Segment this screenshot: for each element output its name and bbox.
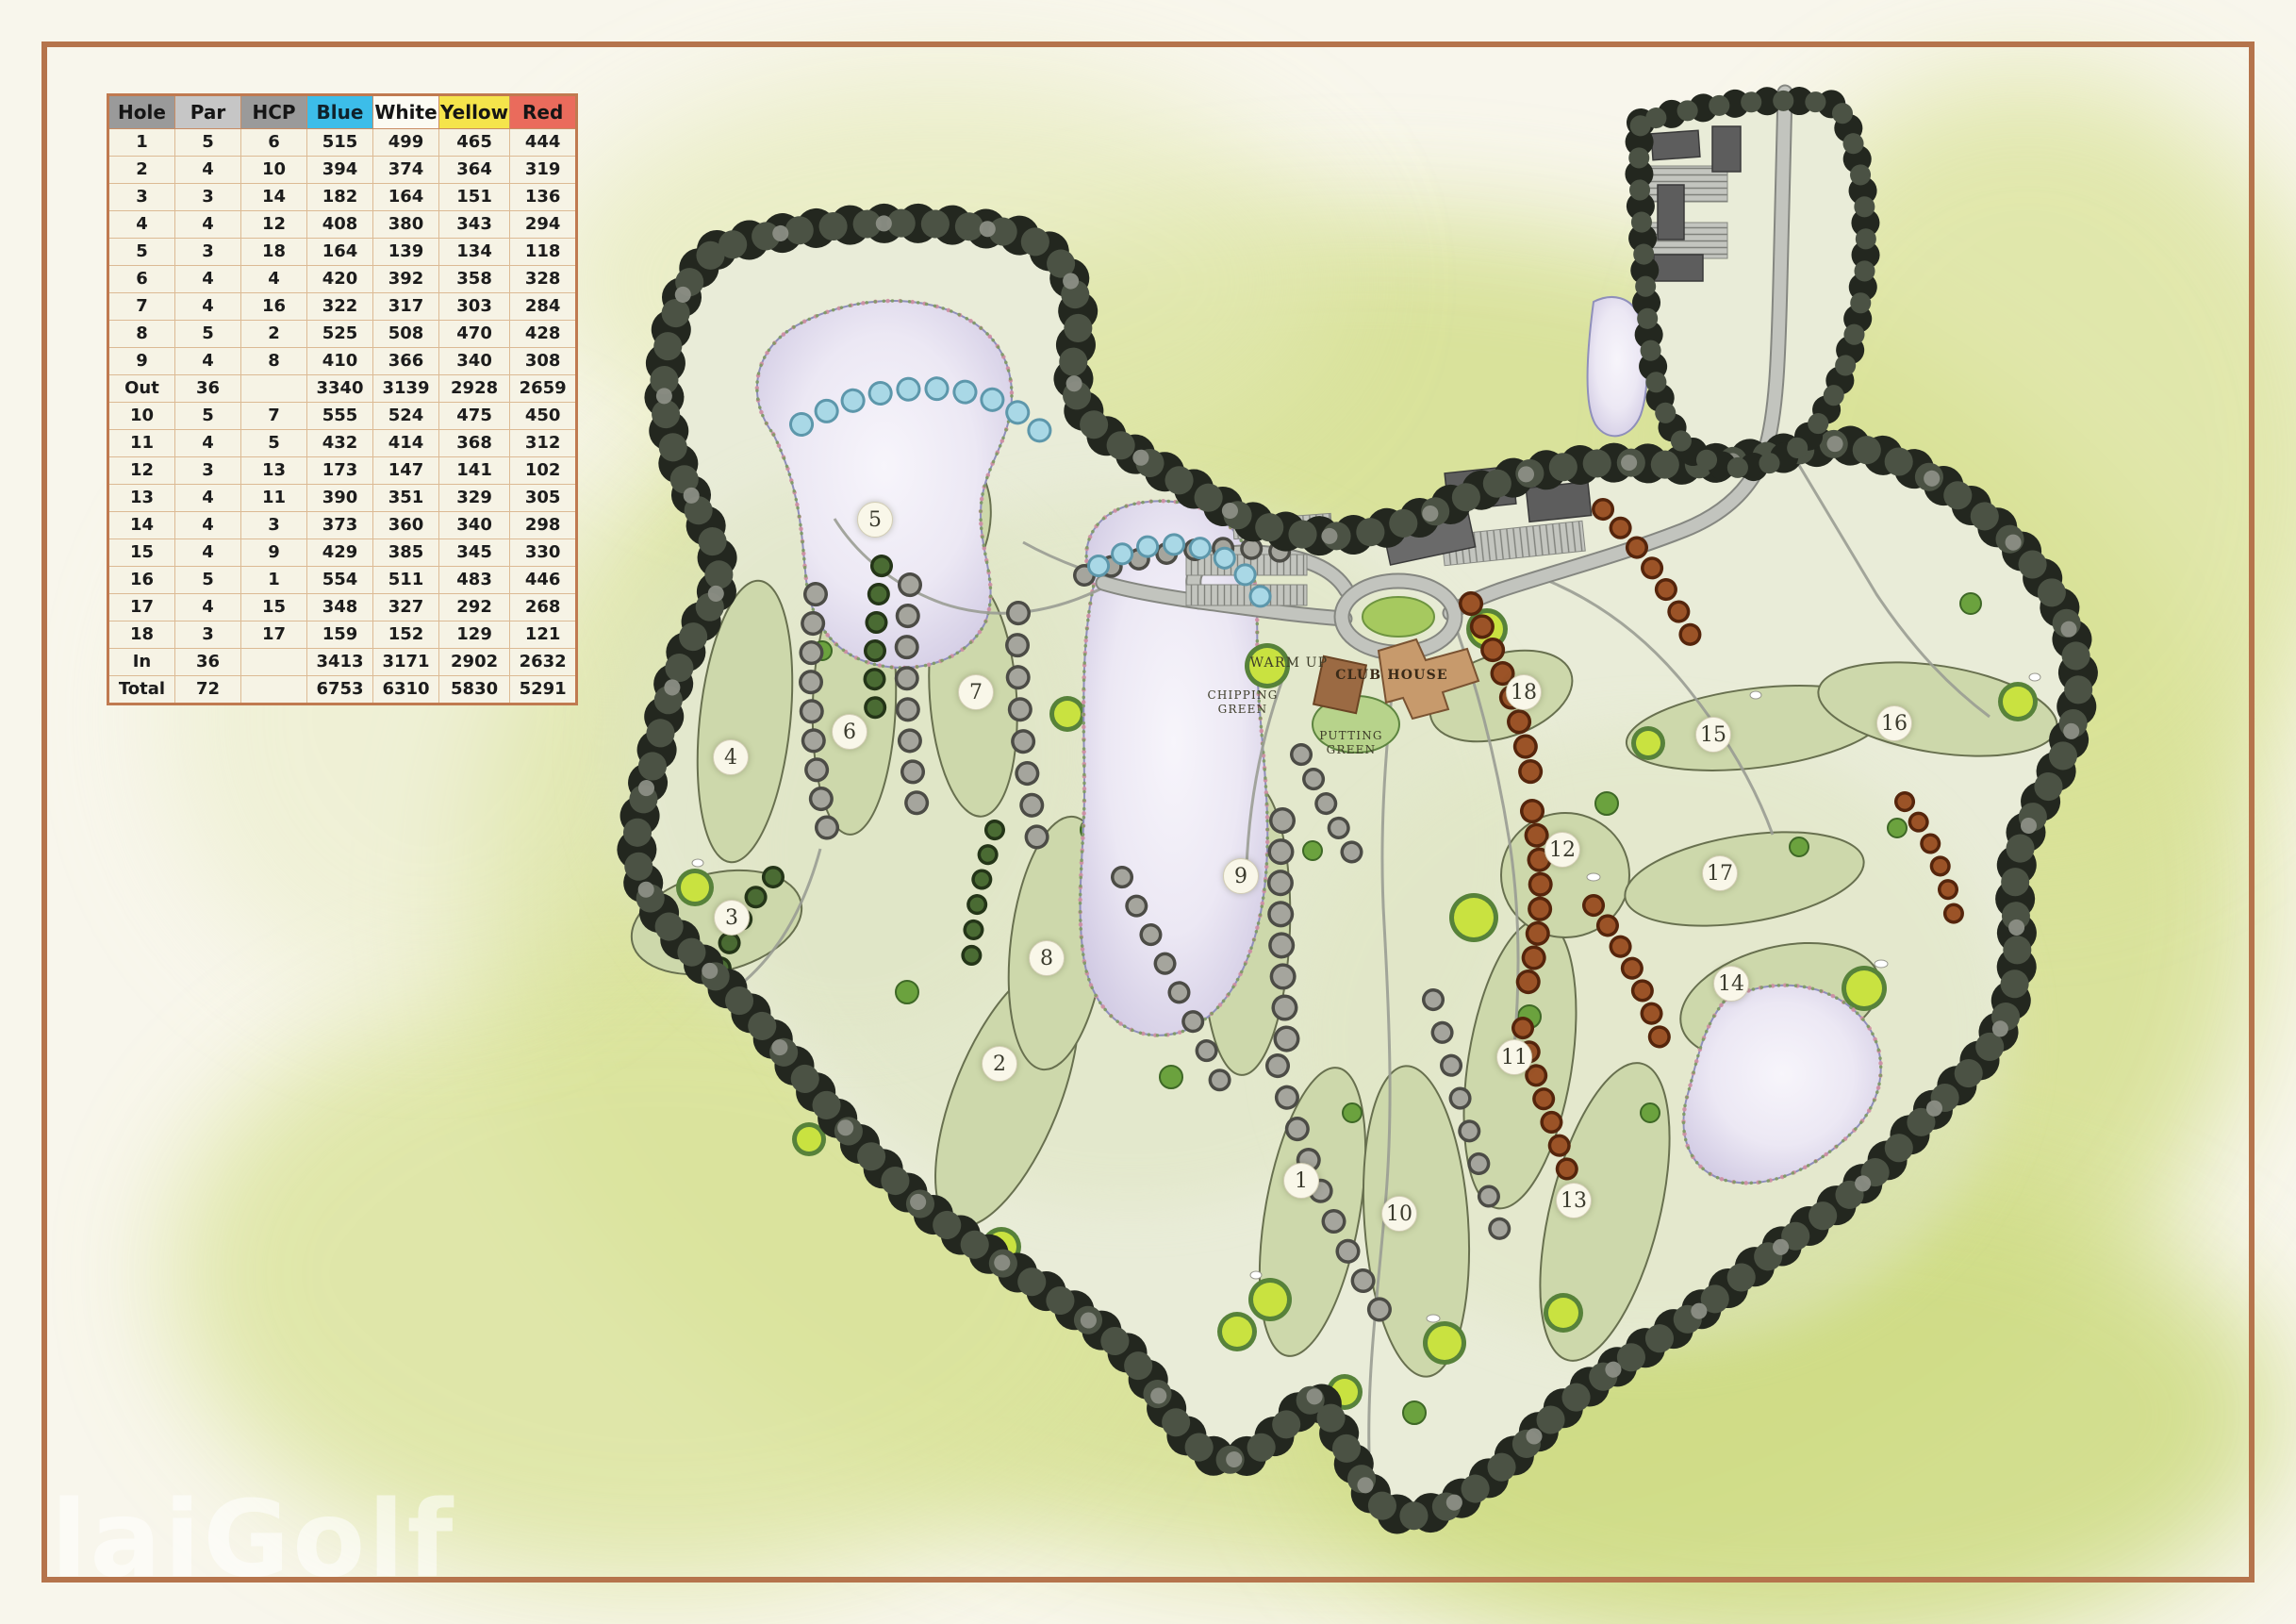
table-cell: 9 — [241, 539, 307, 567]
table-cell: 5291 — [510, 676, 577, 704]
column-header-red: Red — [510, 95, 577, 129]
hole-marker-2: 2 — [982, 1046, 1017, 1082]
table-cell: 6 — [241, 129, 307, 157]
column-header-white: White — [373, 95, 439, 129]
table-cell: 118 — [510, 239, 577, 266]
table-cell: 305 — [510, 485, 577, 512]
table-cell: 15 — [108, 539, 175, 567]
table-row: 17415348327292268 — [108, 594, 577, 621]
hole-marker-8: 8 — [1029, 940, 1065, 976]
table-cell: 525 — [307, 321, 373, 348]
table-row: 7416322317303284 — [108, 293, 577, 321]
table-cell: 16 — [241, 293, 307, 321]
table-cell: 3413 — [307, 649, 373, 676]
table-cell: 5 — [175, 567, 241, 594]
table-cell: 374 — [373, 157, 439, 184]
table-cell: 499 — [373, 129, 439, 157]
table-cell: 483 — [439, 567, 510, 594]
table-cell: 4 — [175, 211, 241, 239]
chipping-green-label: CHIPPING GREEN — [1201, 688, 1284, 717]
table-cell: 139 — [373, 239, 439, 266]
table-row: Total726753631058305291 — [108, 676, 577, 704]
table-cell: 328 — [510, 266, 577, 293]
table-row: 1651554511483446 — [108, 567, 577, 594]
table-cell: 7 — [241, 403, 307, 430]
table-cell: 319 — [510, 157, 577, 184]
golf-course-map-page: laiGolf HoleParHCPBlueWhiteYellowRed 156… — [0, 0, 2296, 1624]
table-cell: 11 — [108, 430, 175, 457]
table-cell: 2902 — [439, 649, 510, 676]
table-cell: 4 — [175, 293, 241, 321]
table-cell: 303 — [439, 293, 510, 321]
table-cell: 294 — [510, 211, 577, 239]
table-cell: 444 — [510, 129, 577, 157]
table-cell: 450 — [510, 403, 577, 430]
table-cell: 3139 — [373, 375, 439, 403]
table-cell: 5 — [175, 129, 241, 157]
table-row: 1145432414368312 — [108, 430, 577, 457]
table-row: 5318164139134118 — [108, 239, 577, 266]
table-cell: 343 — [439, 211, 510, 239]
table-cell: 4 — [175, 485, 241, 512]
table-cell: 4 — [175, 266, 241, 293]
table-cell: 151 — [439, 184, 510, 211]
table-row: Out363340313929282659 — [108, 375, 577, 403]
column-header-par: Par — [175, 95, 241, 129]
table-cell: 8 — [241, 348, 307, 375]
table-cell: 18 — [241, 239, 307, 266]
table-cell: 7 — [108, 293, 175, 321]
table-cell: 16 — [108, 567, 175, 594]
table-cell: 3340 — [307, 375, 373, 403]
table-cell: 329 — [439, 485, 510, 512]
table-cell: 298 — [510, 512, 577, 539]
table-cell: 327 — [373, 594, 439, 621]
table-cell: 72 — [175, 676, 241, 704]
table-cell: 11 — [241, 485, 307, 512]
table-cell: 340 — [439, 348, 510, 375]
table-cell: 428 — [510, 321, 577, 348]
table-row: 1443373360340298 — [108, 512, 577, 539]
table-cell: 4 — [241, 266, 307, 293]
warm-up-label: WARM UP — [1250, 655, 1329, 671]
table-cell: 13 — [241, 457, 307, 485]
table-cell: 5 — [175, 321, 241, 348]
hole-marker-6: 6 — [832, 714, 867, 750]
table-cell: 1 — [241, 567, 307, 594]
hole-marker-3: 3 — [714, 900, 750, 936]
table-cell: 4 — [175, 512, 241, 539]
table-cell: 408 — [307, 211, 373, 239]
table-cell: 3 — [175, 239, 241, 266]
table-cell: 3 — [175, 457, 241, 485]
table-cell: 173 — [307, 457, 373, 485]
hole-marker-9: 9 — [1223, 858, 1259, 894]
table-cell: 345 — [439, 539, 510, 567]
table-cell: 555 — [307, 403, 373, 430]
table-cell: 3 — [175, 184, 241, 211]
table-cell: 8 — [108, 321, 175, 348]
table-cell: 164 — [373, 184, 439, 211]
table-cell — [241, 676, 307, 704]
table-cell: 4 — [108, 211, 175, 239]
scorecard-table: HoleParHCPBlueWhiteYellowRed 15651549946… — [107, 93, 578, 705]
table-cell: 358 — [439, 266, 510, 293]
table-cell: 420 — [307, 266, 373, 293]
hole-marker-7: 7 — [958, 674, 994, 710]
table-cell: 134 — [439, 239, 510, 266]
table-row: In363413317129022632 — [108, 649, 577, 676]
hole-marker-11: 11 — [1496, 1039, 1532, 1075]
table-cell: 312 — [510, 430, 577, 457]
table-cell: 3 — [241, 512, 307, 539]
table-cell: 351 — [373, 485, 439, 512]
hole-marker-18: 18 — [1506, 674, 1542, 710]
hole-marker-5: 5 — [857, 502, 893, 538]
hole-marker-15: 15 — [1695, 717, 1731, 753]
table-cell: 2928 — [439, 375, 510, 403]
table-cell: 5 — [241, 430, 307, 457]
table-cell: 102 — [510, 457, 577, 485]
table-row: 13411390351329305 — [108, 485, 577, 512]
roundabout-island — [1363, 597, 1434, 637]
table-cell: 12 — [108, 457, 175, 485]
table-cell: 511 — [373, 567, 439, 594]
table-cell: 515 — [307, 129, 373, 157]
table-row: 1057555524475450 — [108, 403, 577, 430]
table-cell: 3171 — [373, 649, 439, 676]
hole-marker-4: 4 — [713, 739, 749, 775]
club-house-label: CLUB HOUSE — [1335, 668, 1448, 683]
table-cell: 182 — [307, 184, 373, 211]
table-cell: 159 — [307, 621, 373, 649]
table-row: 852525508470428 — [108, 321, 577, 348]
table-cell: 10 — [241, 157, 307, 184]
table-cell: 385 — [373, 539, 439, 567]
table-cell: 360 — [373, 512, 439, 539]
hole-marker-16: 16 — [1876, 705, 1912, 741]
table-cell: 2 — [241, 321, 307, 348]
table-cell: 373 — [307, 512, 373, 539]
table-cell: 465 — [439, 129, 510, 157]
table-cell: 284 — [510, 293, 577, 321]
table-row: 2410394374364319 — [108, 157, 577, 184]
table-cell — [241, 375, 307, 403]
column-header-hole: Hole — [108, 95, 175, 129]
table-cell: 3 — [175, 621, 241, 649]
column-header-yellow: Yellow — [439, 95, 510, 129]
table-cell: 390 — [307, 485, 373, 512]
hole-marker-10: 10 — [1381, 1196, 1417, 1232]
table-cell: 475 — [439, 403, 510, 430]
table-cell: 554 — [307, 567, 373, 594]
scorecard-body: 1565154994654442410394374364319331418216… — [108, 129, 577, 704]
putting-green-label: PUTTING GREEN — [1310, 729, 1393, 757]
table-cell: 5 — [175, 403, 241, 430]
watermark: laiGolf — [51, 1479, 455, 1601]
table-cell: In — [108, 649, 175, 676]
table-cell: 364 — [439, 157, 510, 184]
table-cell: 394 — [307, 157, 373, 184]
table-cell: 368 — [439, 430, 510, 457]
table-cell: 4 — [175, 430, 241, 457]
table-cell: 10 — [108, 403, 175, 430]
table-cell: 292 — [439, 594, 510, 621]
table-cell: 380 — [373, 211, 439, 239]
table-cell — [241, 649, 307, 676]
table-cell: 2659 — [510, 375, 577, 403]
table-cell: 6753 — [307, 676, 373, 704]
table-cell: 141 — [439, 457, 510, 485]
table-cell: 4 — [175, 594, 241, 621]
scorecard-header-row: HoleParHCPBlueWhiteYellowRed — [108, 95, 577, 129]
table-cell: 2 — [108, 157, 175, 184]
table-cell: 322 — [307, 293, 373, 321]
table-cell: 446 — [510, 567, 577, 594]
table-cell: 2632 — [510, 649, 577, 676]
column-header-blue: Blue — [307, 95, 373, 129]
table-cell: 15 — [241, 594, 307, 621]
table-cell: 508 — [373, 321, 439, 348]
table-row: 18317159152129121 — [108, 621, 577, 649]
table-cell: 429 — [307, 539, 373, 567]
table-cell: 4 — [175, 157, 241, 184]
table-cell: 410 — [307, 348, 373, 375]
table-cell: 36 — [175, 375, 241, 403]
table-cell: 470 — [439, 321, 510, 348]
table-cell: Total — [108, 676, 175, 704]
table-cell: 432 — [307, 430, 373, 457]
table-cell: 4 — [175, 539, 241, 567]
table-row: 644420392358328 — [108, 266, 577, 293]
table-cell: 524 — [373, 403, 439, 430]
table-row: 948410366340308 — [108, 348, 577, 375]
table-cell: 147 — [373, 457, 439, 485]
table-row: 156515499465444 — [108, 129, 577, 157]
table-cell: 121 — [510, 621, 577, 649]
hole-marker-13: 13 — [1556, 1183, 1592, 1218]
table-cell: 12 — [241, 211, 307, 239]
hole-marker-12: 12 — [1544, 832, 1580, 868]
table-cell: 9 — [108, 348, 175, 375]
table-cell: 330 — [510, 539, 577, 567]
hole-marker-1: 1 — [1283, 1163, 1319, 1199]
table-cell: 308 — [510, 348, 577, 375]
table-cell: 340 — [439, 512, 510, 539]
table-cell: 317 — [373, 293, 439, 321]
table-cell: 366 — [373, 348, 439, 375]
table-cell: 6 — [108, 266, 175, 293]
table-cell: 1 — [108, 129, 175, 157]
column-header-hcp: HCP — [241, 95, 307, 129]
table-cell: 6310 — [373, 676, 439, 704]
table-cell: 13 — [108, 485, 175, 512]
table-cell: 17 — [241, 621, 307, 649]
table-cell: Out — [108, 375, 175, 403]
table-cell: 268 — [510, 594, 577, 621]
table-row: 12313173147141102 — [108, 457, 577, 485]
table-row: 1549429385345330 — [108, 539, 577, 567]
table-cell: 5 — [108, 239, 175, 266]
table-cell: 414 — [373, 430, 439, 457]
hole-marker-17: 17 — [1702, 855, 1738, 891]
table-cell: 129 — [439, 621, 510, 649]
table-cell: 4 — [175, 348, 241, 375]
table-cell: 14 — [241, 184, 307, 211]
hole-marker-14: 14 — [1713, 966, 1749, 1002]
table-cell: 164 — [307, 239, 373, 266]
table-cell: 392 — [373, 266, 439, 293]
table-cell: 136 — [510, 184, 577, 211]
table-row: 4412408380343294 — [108, 211, 577, 239]
table-cell: 3 — [108, 184, 175, 211]
table-cell: 14 — [108, 512, 175, 539]
table-row: 3314182164151136 — [108, 184, 577, 211]
table-cell: 348 — [307, 594, 373, 621]
table-cell: 36 — [175, 649, 241, 676]
table-cell: 5830 — [439, 676, 510, 704]
table-cell: 18 — [108, 621, 175, 649]
table-cell: 17 — [108, 594, 175, 621]
table-cell: 152 — [373, 621, 439, 649]
